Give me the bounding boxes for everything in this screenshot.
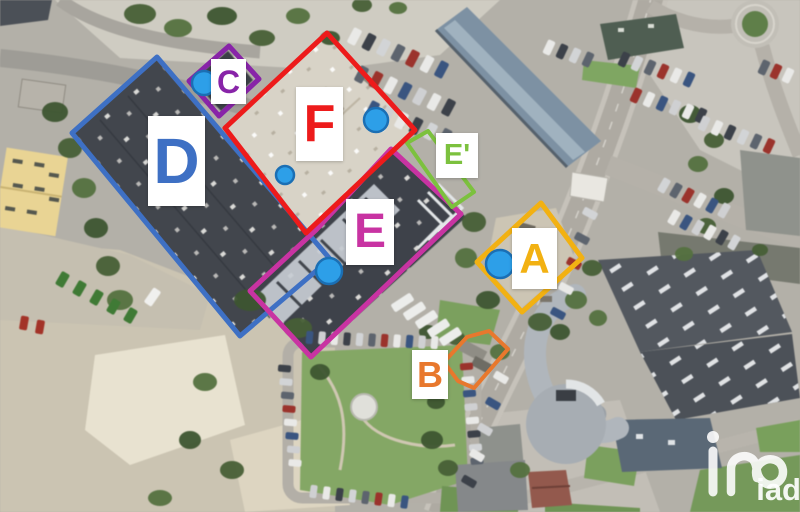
- iad-watermark: iad: [0, 0, 800, 512]
- aerial-map: ABCDEE'F iad: [0, 0, 800, 512]
- iad-brand-text: iad: [756, 472, 800, 507]
